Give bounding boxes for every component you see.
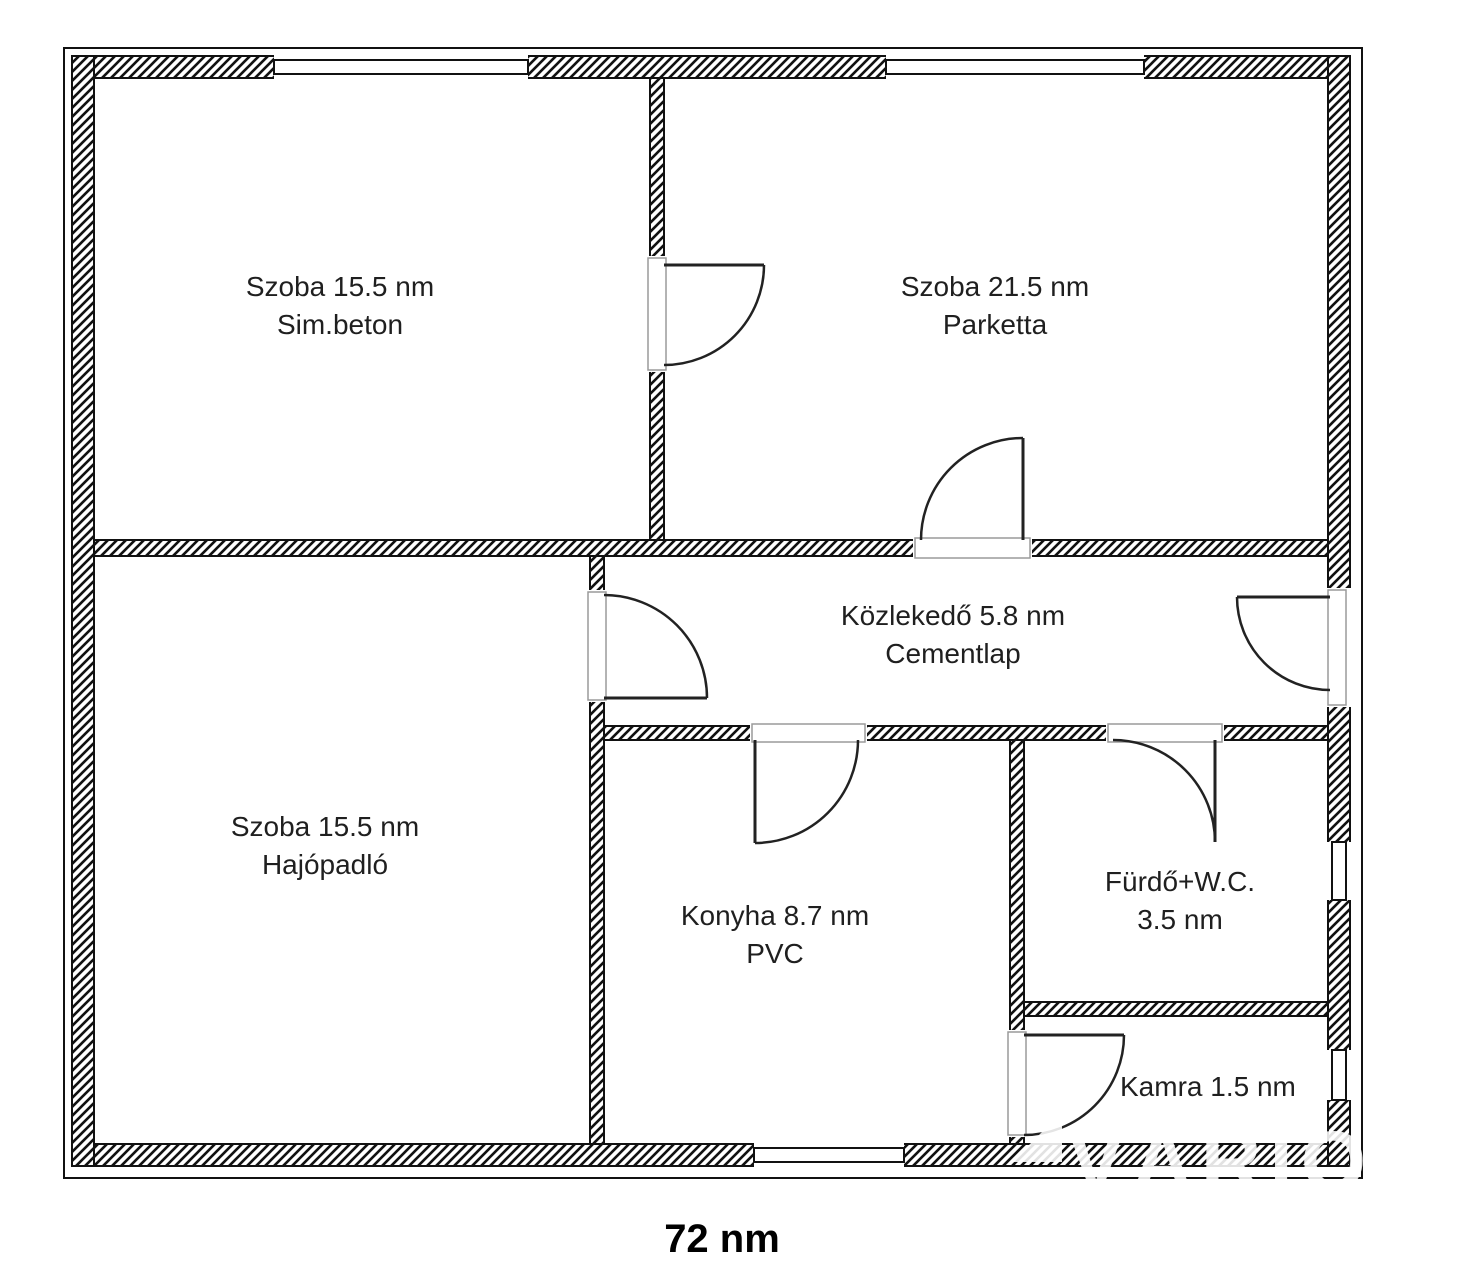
room-labels: Szoba 15.5 nm Sim.beton Szoba 21.5 nm Pa…: [231, 271, 1296, 1102]
room-name: Szoba 21.5 nm: [901, 271, 1089, 302]
room-label-konyha: Konyha 8.7 nm PVC: [681, 900, 869, 969]
door-parketta-corridor: [913, 438, 1032, 560]
window-szoba-topright: [886, 53, 1144, 81]
interior-walls: [94, 78, 1328, 1144]
total-area-label: 72 nm: [664, 1217, 780, 1261]
room-floor: PVC: [746, 938, 804, 969]
door-konyha: [750, 722, 867, 843]
floor-plan: Szoba 15.5 nm Sim.beton Szoba 21.5 nm Pa…: [0, 0, 1462, 1280]
window-furdo: [1325, 842, 1353, 900]
room-label-szoba-bottomleft: Szoba 15.5 nm Hajópadló: [231, 811, 419, 880]
wall-exterior-top: [72, 56, 1350, 78]
room-label-szoba-topleft: Szoba 15.5 nm Sim.beton: [246, 271, 434, 340]
room-name: Fürdő+W.C.: [1105, 866, 1255, 897]
room-label-furdo-wc: Fürdő+W.C. 3.5 nm: [1105, 866, 1255, 935]
window-konyha: [754, 1141, 904, 1169]
room-label-szoba-topright: Szoba 21.5 nm Parketta: [901, 271, 1089, 340]
wall-middle-horizontal: [94, 540, 1328, 556]
room-floor: Parketta: [943, 309, 1048, 340]
room-floor: Cementlap: [885, 638, 1020, 669]
room-floor: Sim.beton: [277, 309, 403, 340]
room-name: Kamra 1.5 nm: [1120, 1071, 1296, 1102]
window-kamra: [1325, 1050, 1353, 1100]
door-between-top-rooms: [646, 256, 764, 372]
room-floor: Hajópadló: [262, 849, 388, 880]
room-name: Szoba 15.5 nm: [246, 271, 434, 302]
room-name: Konyha 8.7 nm: [681, 900, 869, 931]
watermark-text: VÁRIO: [1068, 1114, 1374, 1208]
room-name: Közlekedő 5.8 nm: [841, 600, 1065, 631]
window-szoba-topleft: [274, 53, 528, 81]
door-furdo: [1106, 722, 1224, 842]
wall-bathroom-kamra: [1024, 1002, 1328, 1016]
door-entrance: [1237, 588, 1354, 707]
wall-exterior-left: [72, 56, 94, 1166]
exterior-walls: [72, 56, 1350, 1166]
room-name: Szoba 15.5 nm: [231, 811, 419, 842]
floor-plan-drawing: Szoba 15.5 nm Sim.beton Szoba 21.5 nm Pa…: [0, 0, 1462, 1280]
room-label-kozlekedo: Közlekedő 5.8 nm Cementlap: [841, 600, 1065, 669]
door-bottomleft-room-corridor: [586, 590, 707, 702]
room-floor: 3.5 nm: [1137, 904, 1223, 935]
room-label-kamra: Kamra 1.5 nm: [1120, 1071, 1296, 1102]
